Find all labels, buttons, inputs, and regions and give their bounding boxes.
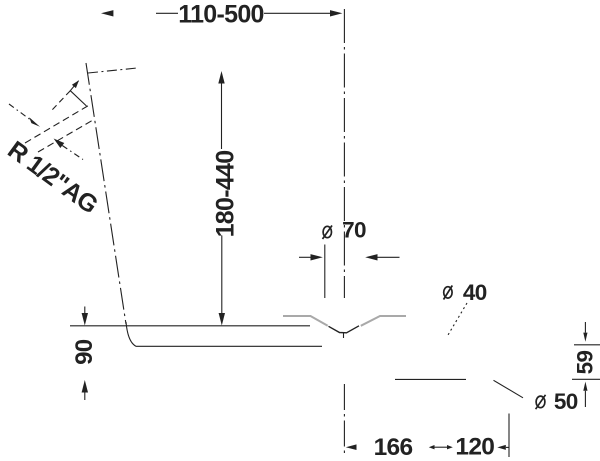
svg-text:90: 90 xyxy=(71,339,98,365)
svg-text:40: 40 xyxy=(463,280,487,305)
svg-text:166: 166 xyxy=(374,434,413,461)
svg-text:50: 50 xyxy=(554,389,578,414)
svg-text:110-500: 110-500 xyxy=(178,1,263,29)
svg-text:59: 59 xyxy=(573,351,598,375)
svg-text:120: 120 xyxy=(455,434,494,461)
svg-text:70: 70 xyxy=(342,218,366,243)
svg-text:180-440: 180-440 xyxy=(212,151,240,238)
